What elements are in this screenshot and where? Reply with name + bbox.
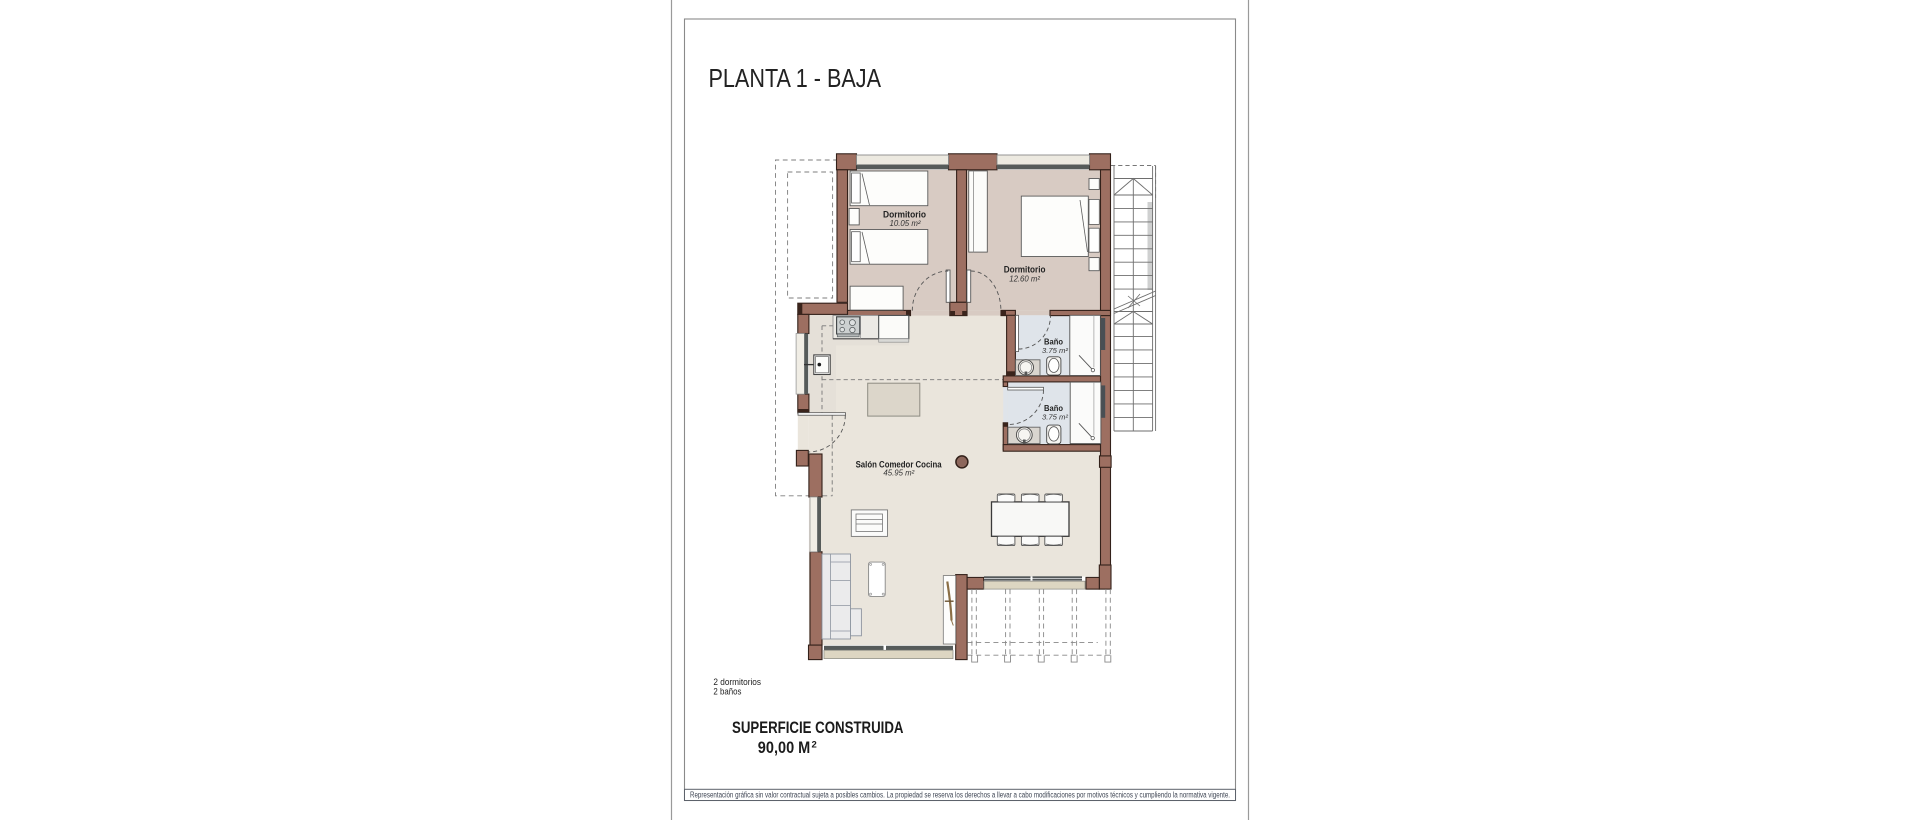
svg-text:10.05 m²: 10.05 m² (890, 219, 921, 228)
svg-text:PLANTA 1 - BAJA: PLANTA 1 - BAJA (709, 63, 882, 93)
svg-text:90,00 M: 90,00 M (758, 738, 811, 757)
svg-text:2 baños: 2 baños (713, 687, 741, 698)
svg-text:12.60 m²: 12.60 m² (1009, 274, 1040, 283)
svg-text:Baño: Baño (1044, 337, 1063, 347)
svg-text:Baño: Baño (1044, 403, 1063, 413)
svg-text:2: 2 (812, 740, 817, 751)
svg-text:SUPERFICIE CONSTRUIDA: SUPERFICIE CONSTRUIDA (732, 718, 904, 737)
svg-text:Dormitorio: Dormitorio (1004, 264, 1046, 274)
svg-text:Representación gráfica sin val: Representación gráfica sin valor contrac… (690, 791, 1230, 800)
svg-text:Dormitorio: Dormitorio (883, 210, 926, 220)
svg-text:3.75 m²: 3.75 m² (1042, 346, 1069, 355)
svg-text:45.95 m²: 45.95 m² (883, 469, 914, 478)
svg-text:3.75 m²: 3.75 m² (1042, 412, 1069, 421)
